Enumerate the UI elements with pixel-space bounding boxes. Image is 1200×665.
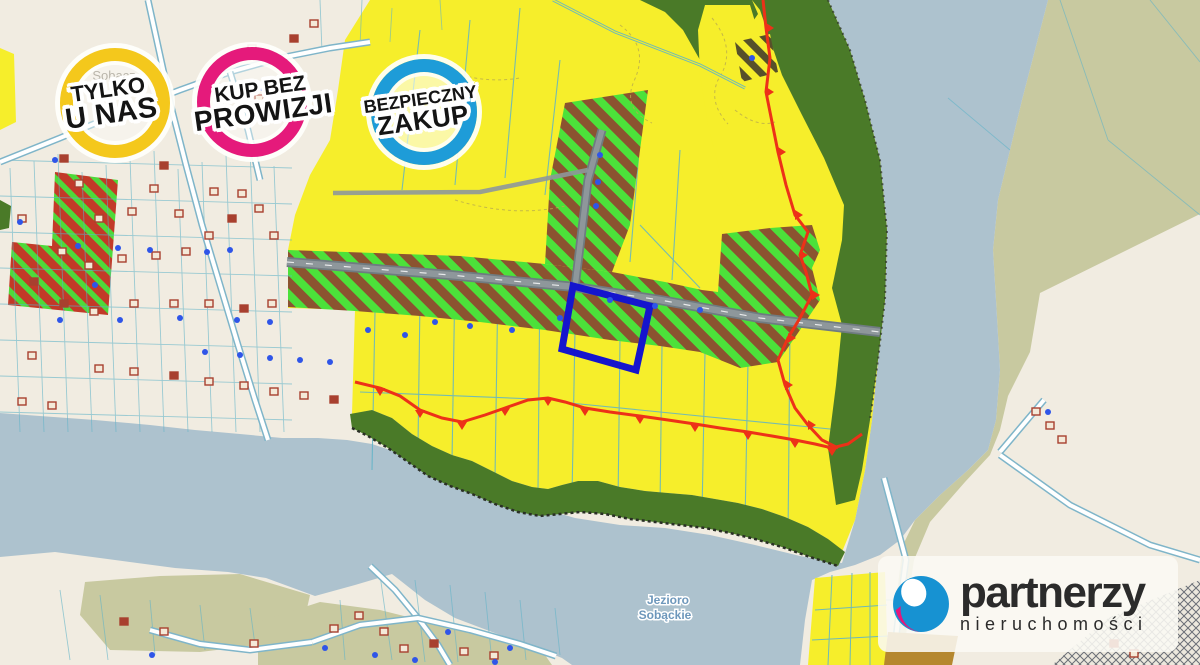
building — [228, 215, 236, 222]
building — [270, 388, 278, 395]
map-dot — [115, 245, 121, 251]
map-dot — [365, 327, 371, 333]
building — [268, 300, 276, 307]
building — [182, 248, 190, 255]
map-dot — [267, 355, 273, 361]
building — [430, 640, 438, 647]
building — [490, 652, 498, 659]
building — [18, 398, 26, 405]
building — [240, 305, 248, 312]
building — [150, 185, 158, 192]
map-dot — [507, 645, 513, 651]
map-dot — [652, 303, 658, 309]
map-dot — [607, 297, 613, 303]
building — [330, 396, 338, 403]
map-dot — [202, 349, 208, 355]
map-dot — [234, 317, 240, 323]
building — [270, 232, 278, 239]
logo-subtitle: nieruchomości — [960, 614, 1148, 635]
building — [240, 382, 248, 389]
map-dot — [204, 249, 210, 255]
building — [28, 352, 36, 359]
building — [205, 232, 213, 239]
map-dot — [117, 317, 123, 323]
map-dot — [593, 203, 599, 209]
building — [1046, 422, 1054, 429]
map-dot — [432, 319, 438, 325]
building — [1032, 408, 1040, 415]
map-dot — [402, 332, 408, 338]
map-dot — [52, 157, 58, 163]
map-dot — [297, 357, 303, 363]
building — [300, 392, 308, 399]
building — [95, 365, 103, 372]
map-dot — [75, 243, 81, 249]
building — [130, 300, 138, 307]
building — [310, 20, 318, 27]
zoning-map-image: Sobącz Jezioro Sobąckie TYLKO U NAS KUP … — [0, 0, 1200, 665]
lake-label-line2: Sobąckie — [639, 608, 692, 622]
building — [130, 368, 138, 375]
building — [60, 155, 68, 162]
map-dot — [557, 315, 563, 321]
building — [205, 300, 213, 307]
building — [48, 402, 56, 409]
map-dot — [177, 315, 183, 321]
map-dot — [1045, 409, 1051, 415]
map-dot — [467, 323, 473, 329]
building — [118, 255, 126, 262]
building — [238, 190, 246, 197]
map-dot — [597, 152, 603, 158]
building — [58, 248, 66, 255]
building — [128, 208, 136, 215]
map-dot — [412, 657, 418, 663]
building — [152, 252, 160, 259]
building — [1058, 436, 1066, 443]
building — [160, 628, 168, 635]
map-dot — [147, 247, 153, 253]
map-dot — [445, 629, 451, 635]
building — [400, 645, 408, 652]
map-dot — [749, 55, 755, 61]
map-dot — [372, 652, 378, 658]
map-dot — [267, 319, 273, 325]
map-dot — [227, 247, 233, 253]
map-dot — [322, 645, 328, 651]
building — [330, 625, 338, 632]
building — [210, 188, 218, 195]
building — [30, 278, 38, 285]
map-dot — [17, 219, 23, 225]
building — [255, 205, 263, 212]
lake-label-line1: Jezioro — [647, 593, 689, 607]
building — [75, 180, 83, 187]
building — [380, 628, 388, 635]
map-dot — [327, 359, 333, 365]
map-dot — [697, 307, 703, 313]
building — [120, 618, 128, 625]
building — [85, 262, 93, 269]
map-dot — [57, 317, 63, 323]
map-dot — [237, 352, 243, 358]
map-dot — [492, 659, 498, 665]
building — [90, 308, 98, 315]
yellow-sliver — [0, 48, 16, 130]
logo-icon — [892, 575, 950, 633]
yellow-parcels-shore — [808, 572, 888, 665]
building — [175, 210, 183, 217]
building — [170, 372, 178, 379]
building — [60, 300, 68, 307]
building — [95, 215, 103, 222]
building — [170, 300, 178, 307]
map-dot — [595, 179, 601, 185]
building — [290, 35, 298, 42]
building — [250, 640, 258, 647]
agency-logo: partnerzy nieruchomości — [878, 556, 1178, 652]
building — [355, 612, 363, 619]
map-dot — [509, 327, 515, 333]
building — [160, 162, 168, 169]
building — [205, 378, 213, 385]
map-dot — [92, 282, 98, 288]
logo-title: partnerzy — [960, 573, 1148, 613]
map-dot — [149, 652, 155, 658]
building — [460, 648, 468, 655]
